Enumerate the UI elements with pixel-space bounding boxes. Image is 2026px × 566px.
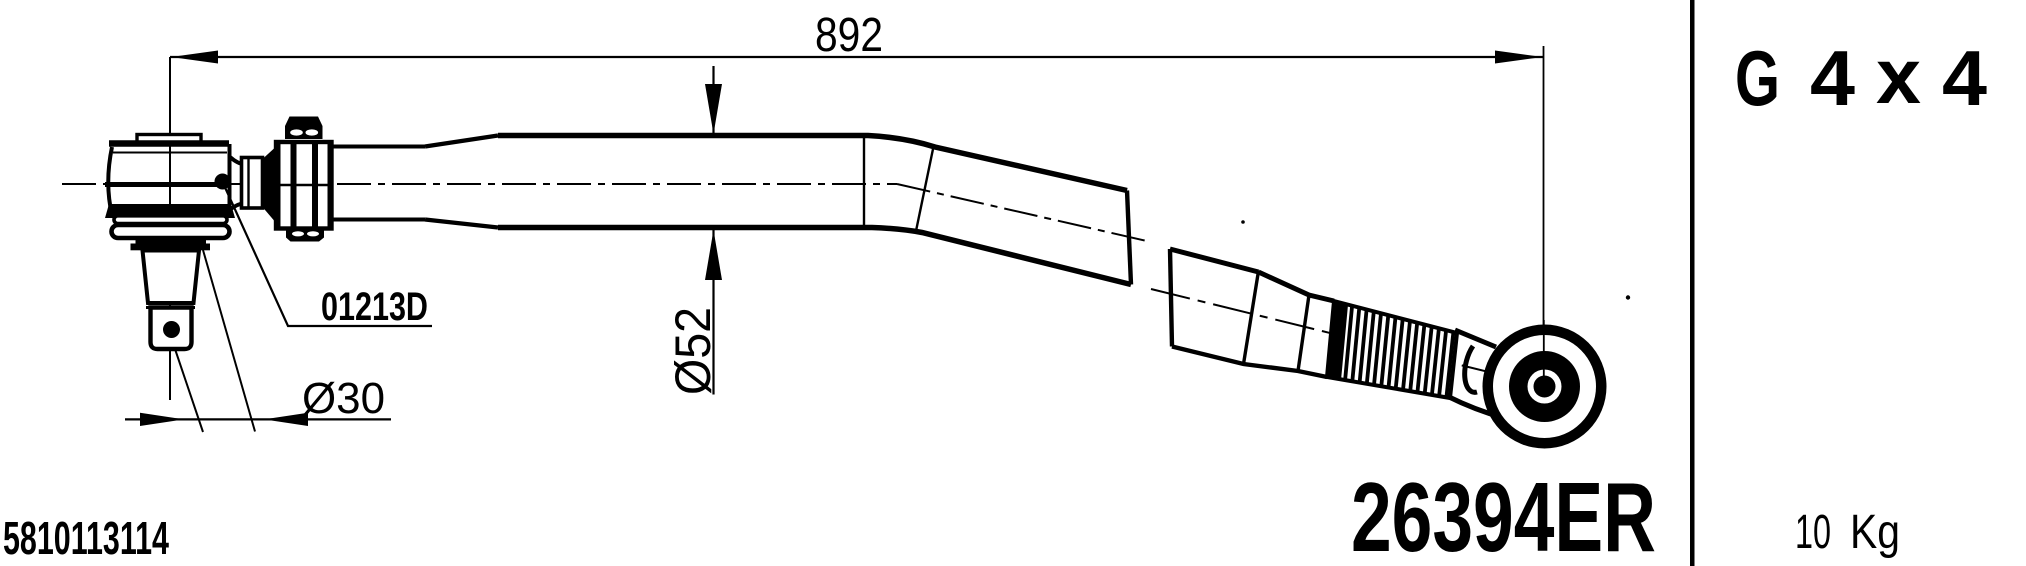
svg-text:5810113114: 5810113114 [3,512,169,564]
svg-text:Ø30: Ø30 [302,374,385,423]
svg-text:Ø52: Ø52 [665,307,721,395]
svg-text:G: G [1735,34,1780,122]
svg-text:26394ER: 26394ER [1351,462,1656,566]
svg-text:10: 10 [1795,506,1831,559]
svg-text:x: x [1876,32,1921,120]
svg-text:892: 892 [815,9,883,62]
svg-text:4: 4 [1810,34,1855,122]
svg-text:4: 4 [1942,34,1987,122]
svg-text:Kg: Kg [1850,506,1900,559]
svg-text:01213D: 01213D [321,285,428,329]
